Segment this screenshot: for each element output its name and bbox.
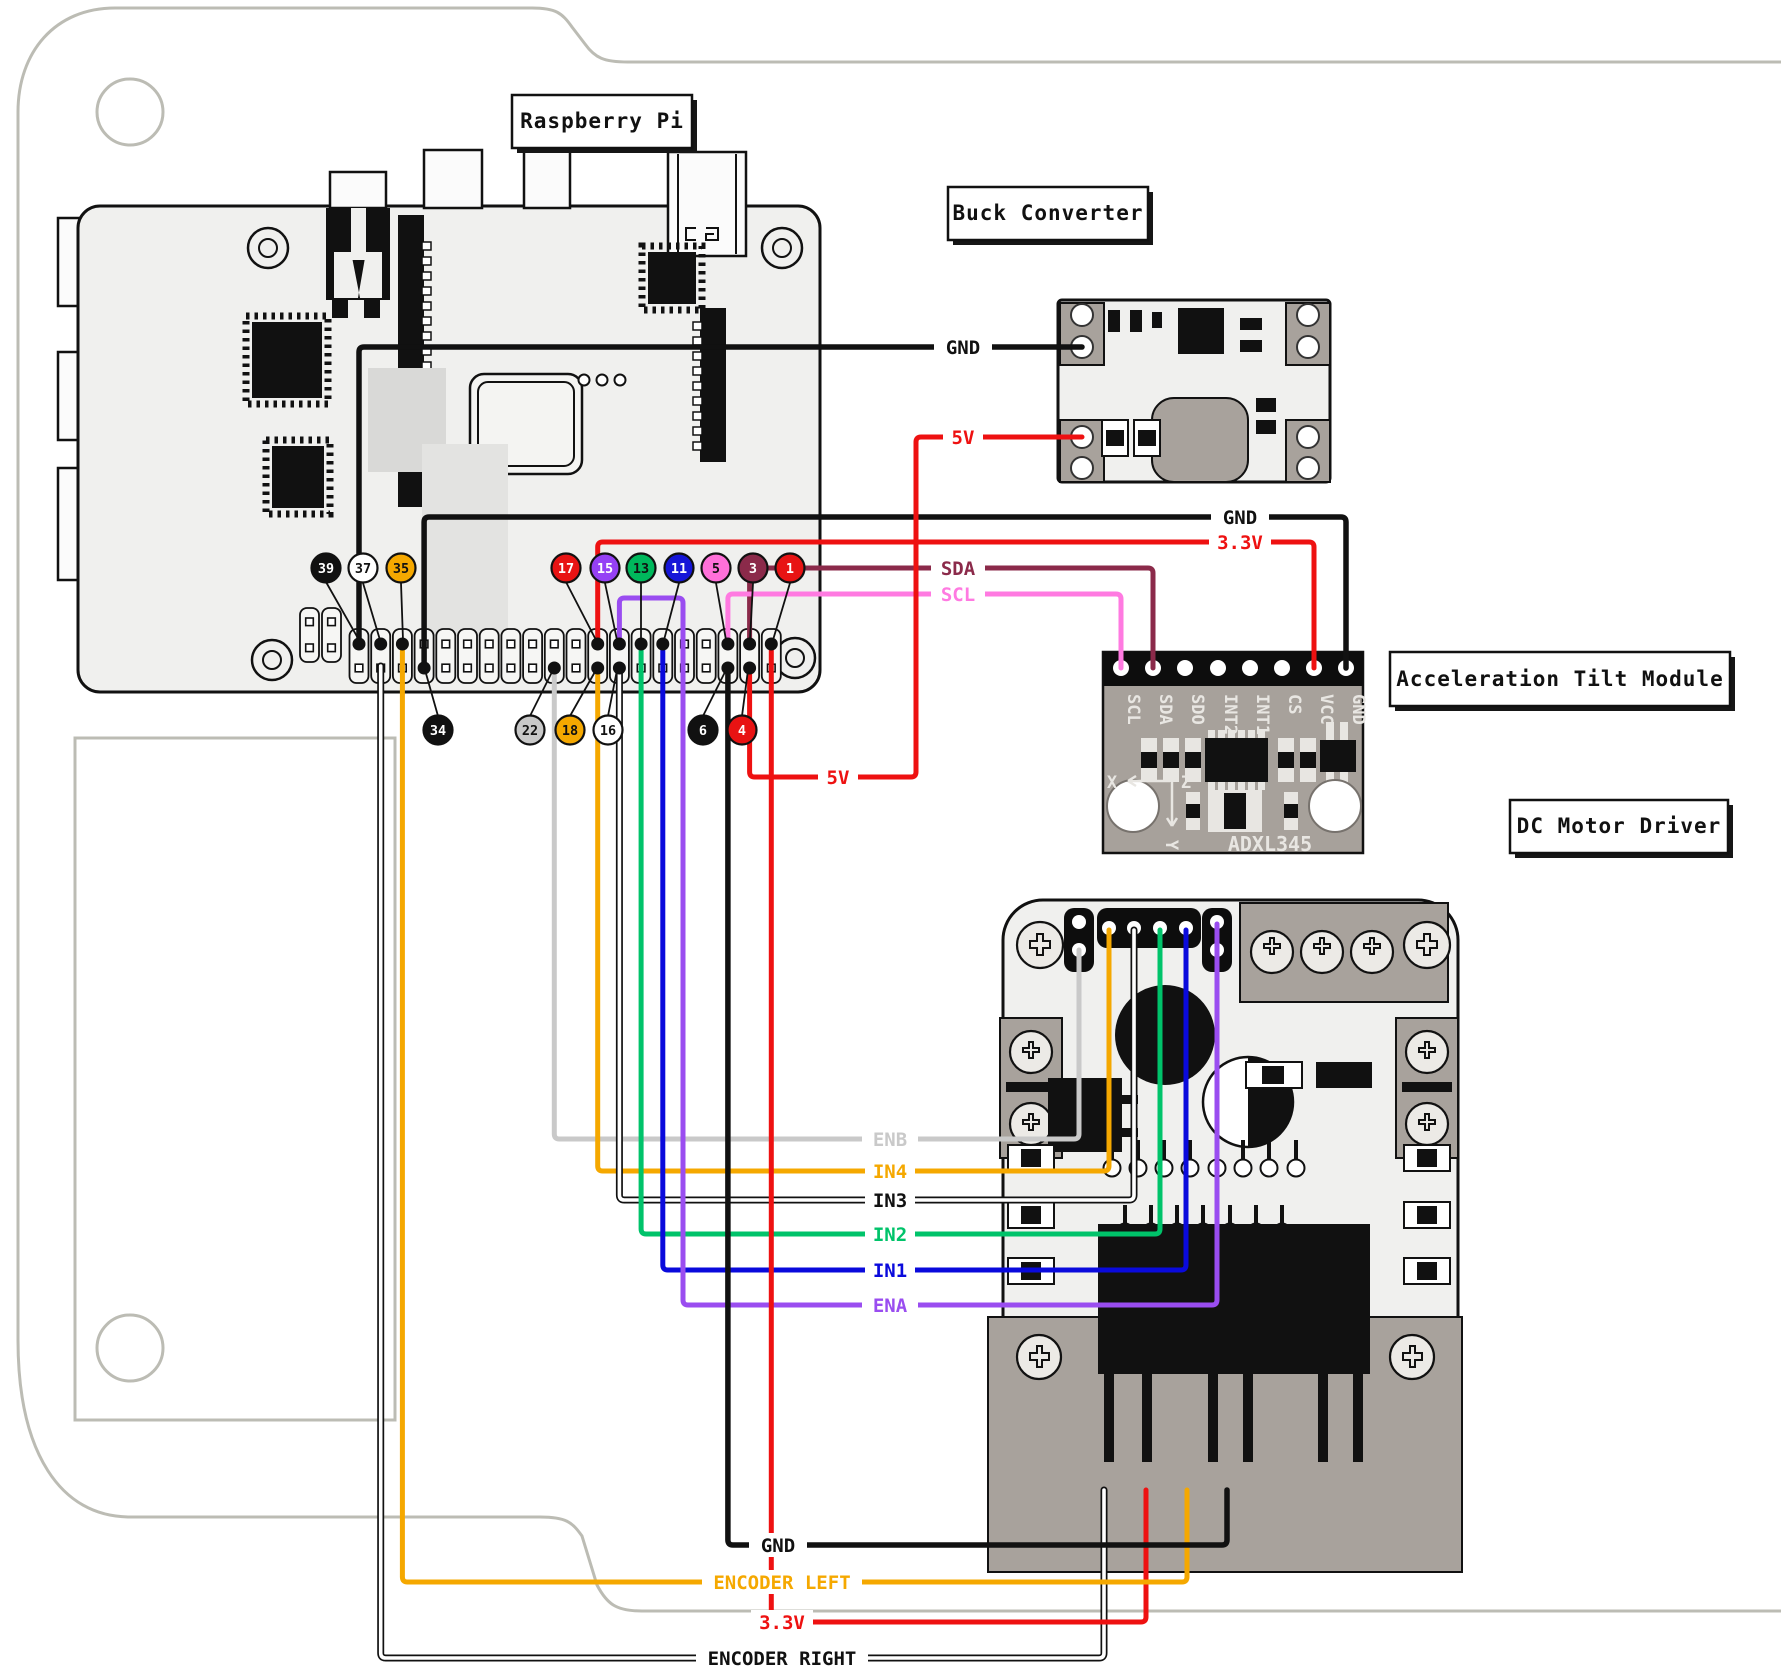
driver-corner-screw xyxy=(1404,922,1450,968)
label-ena: ENA xyxy=(873,1295,908,1317)
label-33v-bottom: 3.3V xyxy=(759,1612,805,1634)
driver-motor-terminal-right xyxy=(1396,1018,1458,1158)
svg-text:5: 5 xyxy=(712,561,720,577)
svg-text:SDA: SDA xyxy=(1155,694,1175,725)
label-in4: IN4 xyxy=(873,1161,907,1183)
label-in2: IN2 xyxy=(873,1224,907,1246)
svg-text:34: 34 xyxy=(430,723,446,739)
chip-usb-controller xyxy=(642,246,702,310)
label-5v-mid: 5V xyxy=(827,767,850,789)
label-gnd-adxl: GND xyxy=(1223,507,1257,529)
svg-text:16: 16 xyxy=(600,723,616,739)
title-tilt-module-text: Acceleration Tilt Module xyxy=(1396,667,1723,691)
raspberry-pi-board xyxy=(58,150,820,692)
adxl-axis-y: Y xyxy=(1161,840,1181,851)
buck-converter-board xyxy=(1058,300,1330,482)
title-motor-driver: DC Motor Driver xyxy=(1510,800,1733,858)
adxl-axis-x: X xyxy=(1107,773,1118,793)
label-in1: IN1 xyxy=(873,1260,907,1282)
svg-text:37: 37 xyxy=(355,561,371,577)
svg-text:1: 1 xyxy=(786,561,794,577)
label-encoder-right: ENCODER RIGHT xyxy=(708,1648,857,1670)
svg-text:13: 13 xyxy=(633,561,649,577)
title-motor-driver-text: DC Motor Driver xyxy=(1517,814,1722,838)
label-sda: SDA xyxy=(941,558,976,580)
svg-text:11: 11 xyxy=(671,561,687,577)
title-buck-converter-text: Buck Converter xyxy=(952,201,1143,225)
title-tilt-module: Acceleration Tilt Module xyxy=(1390,652,1735,711)
svg-text:15: 15 xyxy=(597,561,613,577)
svg-text:6: 6 xyxy=(699,723,707,739)
title-raspberry-pi: Raspberry Pi xyxy=(512,95,697,153)
svg-text:18: 18 xyxy=(562,723,578,739)
title-buck-converter: Buck Converter xyxy=(948,187,1153,245)
svg-text:GND: GND xyxy=(1348,694,1368,725)
label-in3: IN3 xyxy=(873,1190,907,1212)
label-gnd-bottom: GND xyxy=(761,1535,795,1557)
adxl345-module: SCL SDA SDO INT2 INT1 CS VCC GND xyxy=(1103,652,1368,856)
svg-text:INT1: INT1 xyxy=(1252,694,1272,735)
svg-text:SDO: SDO xyxy=(1187,694,1207,725)
label-enb: ENB xyxy=(873,1129,907,1151)
svg-text:CS: CS xyxy=(1284,694,1304,714)
label-5v-buck: 5V xyxy=(952,427,975,449)
chip-ethernet-controller xyxy=(246,316,328,404)
svg-text:3: 3 xyxy=(749,561,757,577)
svg-text:39: 39 xyxy=(318,561,334,577)
label-scl: SCL xyxy=(941,584,975,606)
label-encoder-left: ENCODER LEFT xyxy=(713,1572,850,1594)
label-gnd-buck: GND xyxy=(946,337,980,359)
svg-text:4: 4 xyxy=(738,723,746,739)
board-test-points xyxy=(579,375,626,386)
adxl-axis-z: Z xyxy=(1181,773,1191,793)
pin-badge-numbers-bottom: 34 22 18 16 6 4 xyxy=(430,723,746,739)
chip-power-management xyxy=(266,440,330,514)
svg-text:22: 22 xyxy=(522,723,538,739)
adxl-chip-label: ADXL345 xyxy=(1228,832,1312,856)
wiring-diagram: SCL SDA SDO INT2 INT1 CS VCC GND xyxy=(0,0,1781,1678)
svg-text:VCC: VCC xyxy=(1316,694,1336,725)
label-33v-adxl: 3.3V xyxy=(1217,532,1263,554)
svg-text:17: 17 xyxy=(558,561,574,577)
svg-text:INT2: INT2 xyxy=(1220,694,1240,735)
svg-text:35: 35 xyxy=(393,561,409,577)
sd-slot xyxy=(422,444,508,636)
title-raspberry-pi-text: Raspberry Pi xyxy=(520,109,684,133)
svg-text:SCL: SCL xyxy=(1123,694,1143,725)
